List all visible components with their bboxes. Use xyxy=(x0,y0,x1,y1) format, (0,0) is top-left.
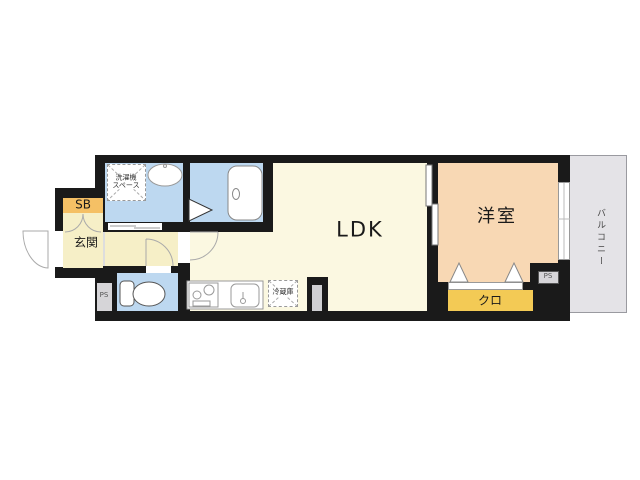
kitchen-pillar-duct xyxy=(312,285,322,311)
pipe-space-right-label: PS xyxy=(544,273,553,281)
entrance-door-swing xyxy=(23,231,48,268)
bathroom-floor xyxy=(190,163,263,222)
shoe-box-label: SB xyxy=(75,198,91,211)
entrance-door-opening xyxy=(55,231,63,267)
ldk-label: LDK xyxy=(336,218,384,241)
entrance-label: 玄関 xyxy=(74,236,98,249)
closet-label: クロ xyxy=(478,294,502,307)
western-room-window xyxy=(558,182,570,260)
floor-plan-canvas: LDK 洋室 玄関 SB クロ バルコニー PS PS 冷蔵庫 洗濯機 スペース xyxy=(0,0,640,480)
entrance-step-line xyxy=(103,232,105,266)
closet-sliding-door xyxy=(448,282,523,290)
balcony-label: バルコニー xyxy=(594,208,604,268)
refrigerator-label: 冷蔵庫 xyxy=(272,289,295,297)
pipe-space-left-label: PS xyxy=(100,292,109,300)
ldk-door-opening xyxy=(178,232,190,263)
toilet-door-opening xyxy=(146,266,171,273)
western-room-label: 洋室 xyxy=(477,207,517,227)
hallway-floor xyxy=(105,232,178,266)
washroom-sliding-door xyxy=(108,223,162,230)
toilet-floor xyxy=(117,273,178,311)
washer-space-label-line2: スペース xyxy=(112,181,139,189)
washer-space-label: 洗濯機 スペース xyxy=(111,174,140,189)
